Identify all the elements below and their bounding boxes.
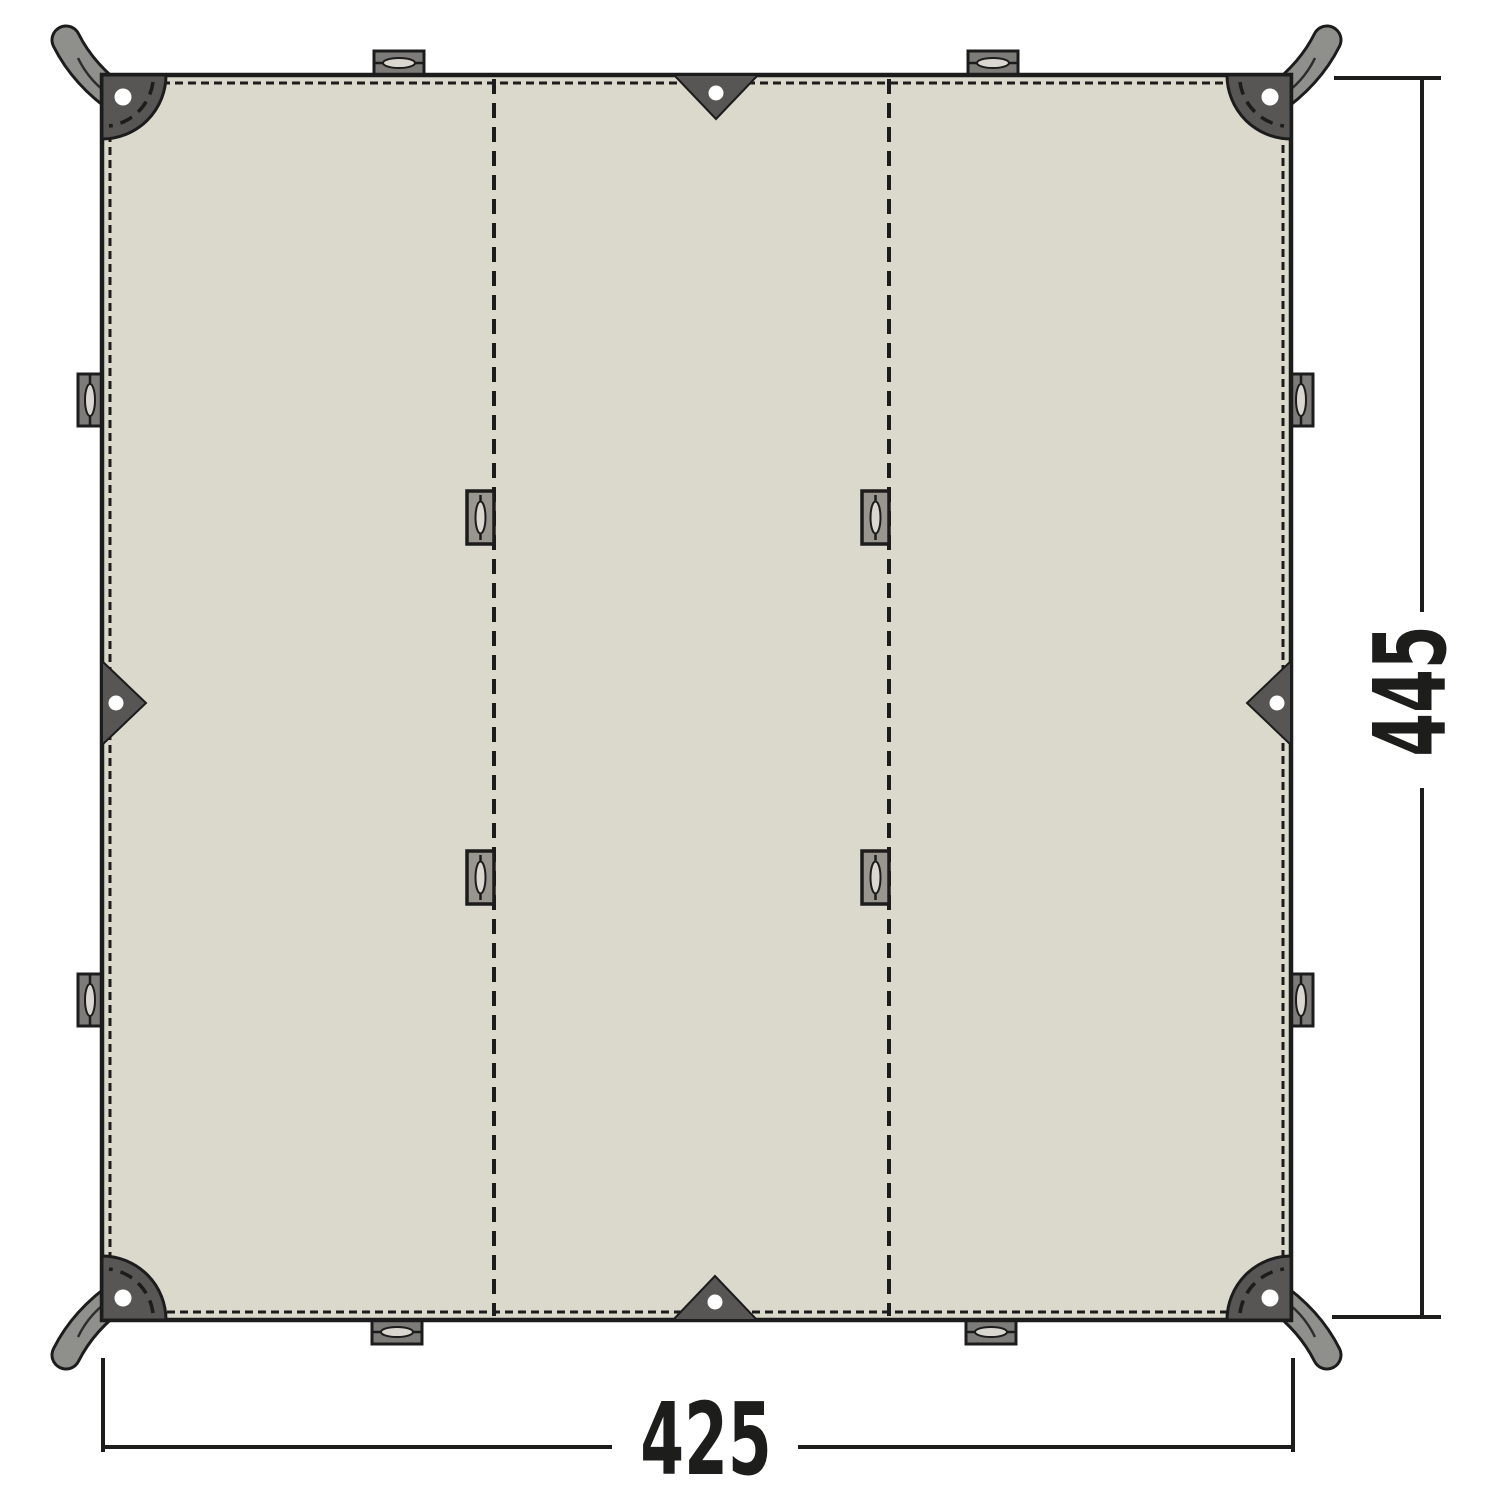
diagram-canvas: 425 445 [0, 0, 1500, 1500]
grommet [115, 1290, 132, 1307]
webbing-tab-left-lower [78, 974, 102, 1026]
grommet [708, 1295, 723, 1310]
seam-loop-upper-right [862, 491, 889, 544]
grommet [1262, 1290, 1279, 1307]
seam-loop-upper-left [467, 491, 494, 544]
grommet [1270, 696, 1285, 711]
webbing-tab-top-right [968, 51, 1018, 75]
webbing-tab-bottom-left [372, 1320, 422, 1344]
seam-loop-lower-left [467, 851, 494, 904]
webbing-tab-top-left [374, 51, 424, 75]
webbing-tab-left-upper [78, 374, 102, 426]
tarp-panel [102, 75, 1291, 1320]
seam-loop-lower-right [862, 851, 889, 904]
webbing-tab-bottom-right [966, 1320, 1016, 1344]
tarp-top-view-diagram [0, 0, 1500, 1500]
grommet [709, 86, 724, 101]
height-dimension-label: 445 [1348, 565, 1472, 817]
grommet [115, 89, 132, 106]
grommet [109, 696, 124, 711]
width-dimension-label: 425 [580, 1377, 832, 1500]
grommet [1262, 89, 1279, 106]
